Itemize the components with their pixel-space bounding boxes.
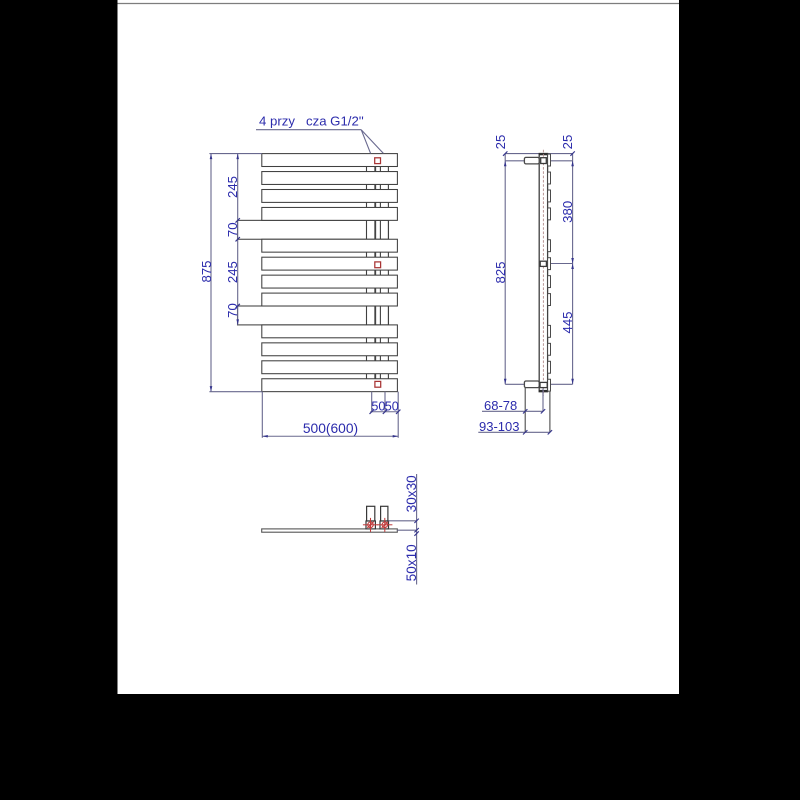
svg-text:70: 70 [225, 222, 240, 237]
svg-text:4 przy: 4 przy [259, 114, 295, 129]
svg-text:93-103: 93-103 [479, 419, 519, 434]
svg-text:50: 50 [371, 400, 385, 414]
svg-text:25: 25 [560, 135, 575, 150]
svg-text:cza G1/2'': cza G1/2'' [306, 114, 364, 129]
svg-text:500(600): 500(600) [303, 421, 358, 436]
svg-text:825: 825 [493, 261, 508, 283]
svg-text:245: 245 [225, 176, 240, 198]
svg-text:50x10: 50x10 [404, 544, 419, 581]
svg-text:50: 50 [385, 400, 399, 414]
svg-text:380: 380 [560, 201, 575, 223]
svg-text:25: 25 [493, 135, 508, 150]
svg-text:875: 875 [199, 260, 214, 282]
svg-text:445: 445 [560, 311, 575, 333]
svg-text:70: 70 [225, 303, 240, 318]
svg-text:68-78: 68-78 [484, 398, 517, 413]
svg-text:30x30: 30x30 [404, 475, 419, 512]
svg-text:245: 245 [225, 261, 240, 283]
